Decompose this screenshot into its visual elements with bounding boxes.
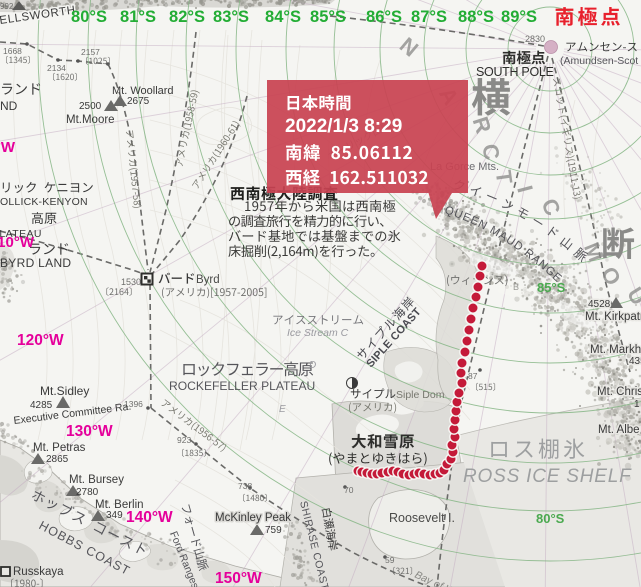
svg-text:OLLICK-KENYON: OLLICK-KENYON: [0, 196, 88, 208]
svg-text:D: D: [309, 360, 316, 371]
svg-text:88°S: 88°S: [458, 8, 494, 26]
svg-text:ROCKEFELLER PLATEAU: ROCKEFELLER PLATEAU: [169, 379, 315, 393]
svg-text:Siple Dom: Siple Dom: [396, 389, 445, 401]
svg-text:89°S: 89°S: [501, 8, 537, 26]
svg-text:83°S: 83°S: [213, 8, 249, 26]
svg-text:86°S: 86°S: [366, 8, 402, 26]
svg-text:738: 738: [238, 481, 252, 491]
svg-text:70: 70: [344, 485, 354, 495]
svg-text:2022/1/3 8:29: 2022/1/3 8:29: [285, 116, 402, 137]
svg-text:1: 1: [634, 399, 640, 410]
svg-text:100°W: 100°W: [0, 139, 16, 156]
svg-text:Mt. Bursey: Mt. Bursey: [69, 474, 124, 486]
svg-text:SOUTH POLE: SOUTH POLE: [476, 65, 554, 79]
svg-text:2830: 2830: [525, 34, 545, 44]
svg-text:ND: ND: [0, 99, 18, 113]
svg-text:2675: 2675: [127, 96, 150, 107]
svg-text:87°S: 87°S: [411, 8, 447, 26]
svg-text:435: 435: [629, 356, 641, 367]
svg-text:2500: 2500: [79, 101, 102, 112]
svg-text:Mt.Sidley: Mt.Sidley: [40, 384, 89, 398]
svg-text:992: 992: [0, 2, 14, 11]
svg-text:2780: 2780: [76, 487, 99, 498]
svg-text:349: 349: [106, 510, 123, 521]
svg-text:110°W: 110°W: [0, 234, 35, 251]
svg-text:2865: 2865: [46, 454, 69, 465]
svg-text:84°S: 84°S: [265, 8, 301, 26]
svg-text:Mt. Markh: Mt. Markh: [590, 344, 641, 356]
svg-text:E: E: [279, 404, 286, 415]
svg-text:923: 923: [177, 435, 191, 445]
svg-text:150°W: 150°W: [215, 570, 262, 587]
svg-text:(Amundsen-Scot: (Amundsen-Scot: [560, 55, 638, 67]
svg-text:BYRD LAND: BYRD LAND: [0, 256, 71, 270]
svg-text:85°S: 85°S: [310, 8, 346, 26]
svg-text:140°W: 140°W: [126, 509, 173, 526]
svg-text:Russkaya: Russkaya: [13, 566, 64, 578]
svg-text:4528: 4528: [588, 299, 611, 310]
svg-text:59: 59: [385, 555, 395, 565]
svg-text:Mt. Kirkpatri: Mt. Kirkpatri: [585, 311, 641, 323]
svg-text:80°S: 80°S: [536, 511, 565, 526]
svg-text:Mt.Moore: Mt.Moore: [66, 114, 115, 126]
svg-text:Roosevelt I.: Roosevelt I.: [389, 511, 455, 525]
svg-text:80°S: 80°S: [71, 8, 107, 26]
svg-text:130°W: 130°W: [66, 423, 113, 440]
svg-text:McKinley Peak: McKinley Peak: [215, 512, 291, 524]
svg-text:ROSS ICE SHELF: ROSS ICE SHELF: [463, 466, 632, 487]
svg-text:Mt. Albe: Mt. Albe: [598, 424, 640, 436]
svg-text:Mt. Petras: Mt. Petras: [33, 442, 86, 454]
svg-text:2157: 2157: [81, 47, 100, 57]
svg-text:87: 87: [468, 371, 478, 381]
svg-text:Byrd: Byrd: [196, 274, 220, 286]
svg-text:82°S: 82°S: [169, 8, 205, 26]
svg-text:4285: 4285: [30, 400, 53, 411]
svg-text:81°S: 81°S: [120, 8, 156, 26]
svg-text:Ice Stream C: Ice Stream C: [287, 327, 349, 339]
svg-text:85°S: 85°S: [537, 280, 566, 295]
svg-text:759: 759: [265, 525, 282, 536]
svg-text:B: B: [513, 282, 519, 292]
svg-text:2134: 2134: [47, 63, 66, 73]
svg-text:1530: 1530: [121, 277, 141, 287]
svg-text:1668: 1668: [3, 46, 22, 56]
svg-text:Mt. Chris: Mt. Chris: [597, 386, 641, 398]
svg-text:120°W: 120°W: [17, 332, 64, 349]
